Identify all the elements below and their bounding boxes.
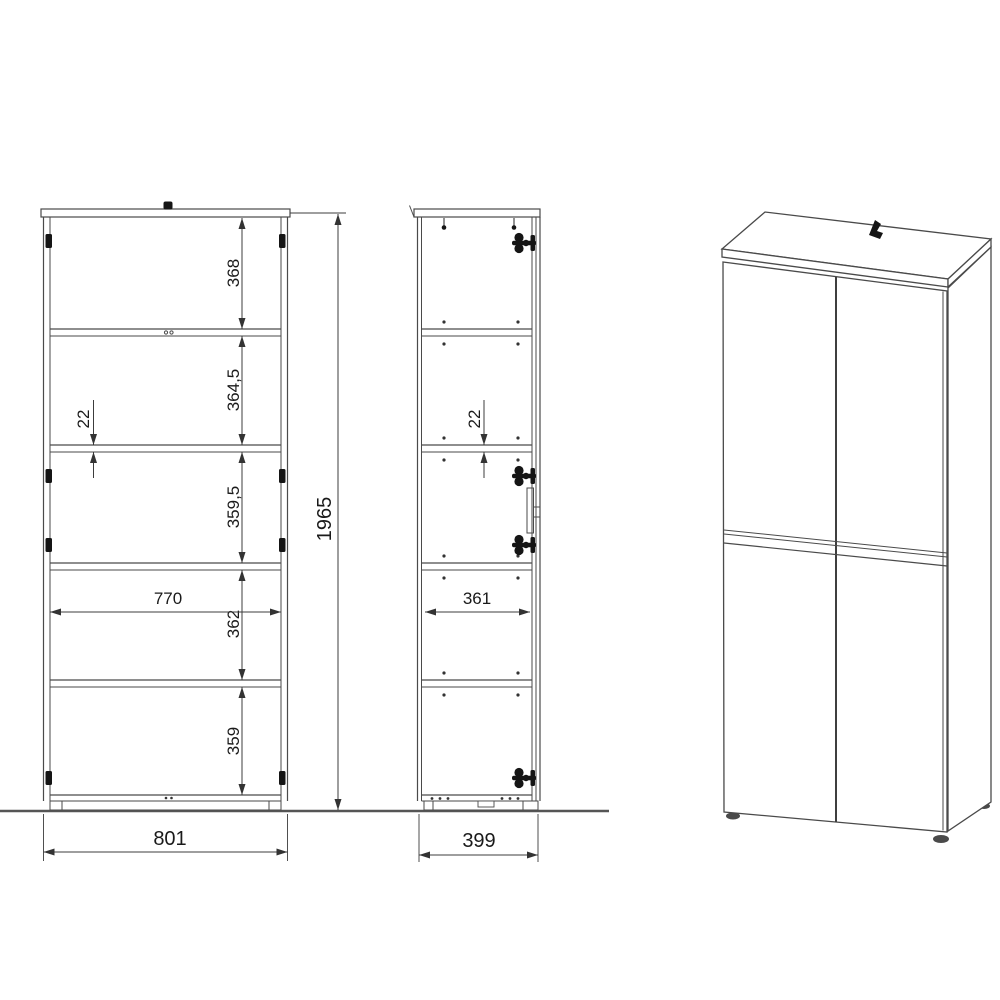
wall-mount-bracket-icon	[164, 202, 173, 210]
door-handle-profile	[527, 488, 540, 533]
hinge-mark-icon	[279, 538, 286, 552]
dim-front-section-bottom: 359	[224, 727, 243, 755]
dim-front-outer-width: 801	[153, 828, 186, 850]
cabinet-side-panel	[948, 247, 991, 831]
hinge-mark-icon	[46, 234, 53, 248]
hinge-icon	[512, 768, 536, 788]
hinge-mark-icon	[46, 771, 53, 785]
front-shelf-thickness-dimension: 22	[74, 400, 94, 478]
side-outer-depth-dimension: 399	[419, 814, 538, 862]
dim-front-section-lower: 362	[224, 610, 243, 638]
hinge-mark-icon	[279, 469, 286, 483]
hinge-mark-icon	[279, 234, 286, 248]
side-inner-depth-dimension: 361	[425, 589, 530, 612]
hinge-mark-icon	[46, 469, 53, 483]
front-elevation-view	[41, 202, 290, 811]
dim-front-total-height: 1965	[314, 497, 336, 542]
hinge-mark-icon	[279, 771, 286, 785]
front-total-height-dimension: 1965	[290, 213, 346, 810]
screw-icon	[442, 218, 517, 230]
front-inner-width-dimension: 770	[50, 589, 281, 612]
dim-side-inner-depth: 361	[463, 589, 491, 608]
front-dimension-chain: 368 364,5 359,5 362 359	[224, 218, 243, 795]
dim-front-section-upper: 364,5	[224, 369, 243, 412]
shelf-pin-hole	[164, 331, 167, 334]
foot-glide-icon	[933, 835, 949, 843]
hinge-icon	[512, 535, 536, 555]
hinge-icon	[512, 233, 536, 253]
dim-front-shelf-thickness: 22	[74, 410, 93, 429]
shelf-pin-dots	[442, 320, 519, 696]
hinge-icon	[512, 466, 536, 486]
hinge-mark-icon	[46, 538, 53, 552]
dim-front-inner-width: 770	[154, 589, 182, 608]
dim-side-outer-depth: 399	[462, 830, 495, 852]
cabinet-technical-drawing: 368 364,5 359,5 362 359 22 770 801 1965	[0, 0, 1000, 1000]
perspective-view	[722, 212, 991, 843]
dim-side-shelf-thickness: 22	[465, 410, 484, 429]
technical-drawing-page: 368 364,5 359,5 362 359 22 770 801 1965	[0, 0, 1000, 1000]
dim-front-section-middle: 359,5	[224, 486, 243, 529]
side-shelf-thickness-dimension: 22	[465, 400, 484, 478]
shelf-pin-hole	[170, 331, 173, 334]
side-elevation-view	[410, 206, 541, 811]
dim-front-section-top: 368	[224, 259, 243, 287]
front-outer-width-dimension: 801	[44, 814, 288, 861]
